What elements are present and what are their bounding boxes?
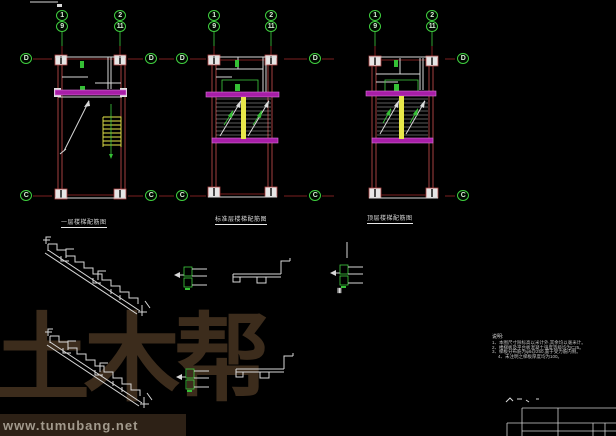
plan-first-floor (54, 55, 127, 199)
axis-bubble: C (145, 190, 157, 201)
plan-caption-first-floor: 一层楼梯配筋图 (61, 217, 107, 228)
plan-standard-floor (206, 55, 279, 197)
axis-bubble: D (20, 53, 32, 64)
axis-bubble: C (20, 190, 32, 201)
edge-artifacts (30, 2, 62, 7)
axis-bubble: 1 (208, 10, 220, 21)
axis-bubble: C (176, 190, 188, 201)
axis-bubble: 1 (56, 10, 68, 21)
axis-bubble: 9 (56, 21, 68, 32)
axis-bubble: D (176, 53, 188, 64)
axis-bubble: C (457, 190, 469, 201)
watermark-url-bar: www.tumubang.net (0, 414, 186, 436)
axis-bubble: D (457, 53, 469, 64)
cad-viewport: 土木帮 (0, 0, 616, 436)
axis-bubble: 2 (265, 10, 277, 21)
title-block-grid (506, 398, 616, 436)
section-mark-label: Ⅲ (337, 287, 342, 295)
axis-bubble: 11 (114, 21, 126, 32)
notes-block: 说明: 1、本图尺寸除标高以米计外,其余均以毫米计。 2、楼梯板及平台板混凝土强… (492, 335, 586, 360)
stair-section-details (43, 237, 152, 408)
axis-bubble: 1 (369, 10, 381, 21)
plan-top-floor (366, 56, 438, 198)
axis-bubble: 9 (369, 21, 381, 32)
axis-bubble: 11 (426, 21, 438, 32)
axis-bubble: 9 (208, 21, 220, 32)
note-line: 4、未注明之梯板厚度均为100。 (492, 355, 586, 360)
plan-caption-standard-floor: 标准层楼梯配筋图 (215, 214, 267, 225)
axis-bubble: 2 (426, 10, 438, 21)
axis-bubble: D (309, 53, 321, 64)
landing-details (174, 242, 363, 392)
watermark-url-text: www.tumubang.net (0, 418, 138, 433)
axis-bubble: D (145, 53, 157, 64)
axis-bubble: C (309, 190, 321, 201)
axis-bubble: 2 (114, 10, 126, 21)
axis-bubble: 11 (265, 21, 277, 32)
plan-caption-top-floor: 顶层楼梯配筋图 (367, 213, 413, 224)
